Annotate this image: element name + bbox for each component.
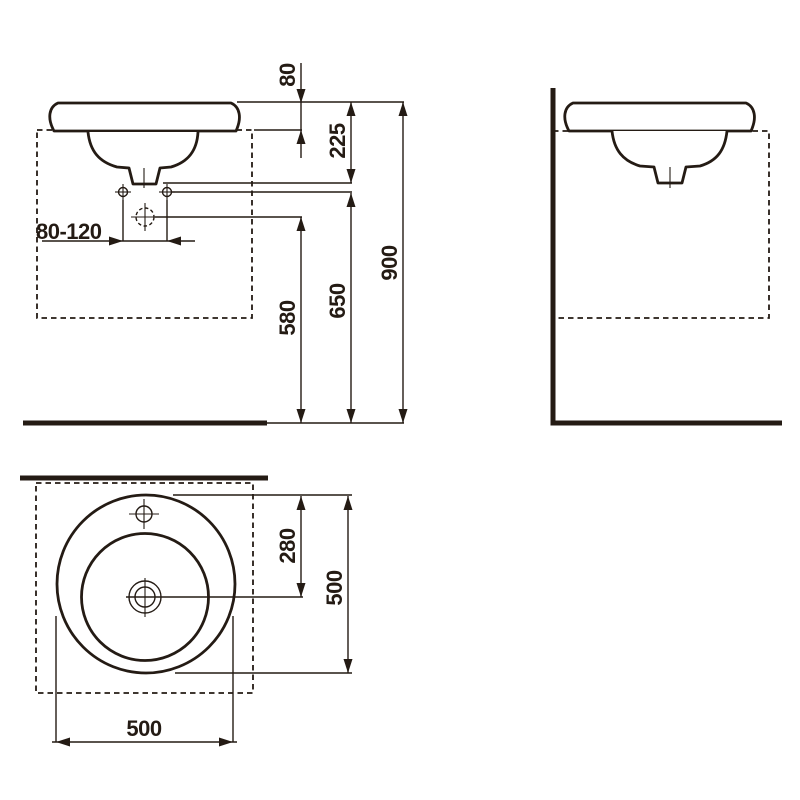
- dim-label: 225: [325, 123, 350, 158]
- dim-tap-hole-spacing: 80-120: [36, 219, 195, 246]
- arrow-right-icon: [219, 738, 233, 747]
- dim-label: 900: [377, 245, 402, 280]
- dim-label: 580: [275, 300, 300, 335]
- arrow-up-icon: [297, 496, 306, 510]
- basin-bowl: [88, 132, 198, 184]
- arrow-down-icon: [297, 89, 306, 103]
- plan-view: 280 500 500: [20, 478, 353, 747]
- arrow-up-icon: [297, 130, 306, 144]
- dim-fixing-height: 650: [325, 193, 356, 423]
- fixing-hole-marker-left: [115, 184, 131, 200]
- front-elevation-view: 80 225 650 580 900: [23, 63, 408, 423]
- arrow-up-icon: [347, 102, 356, 116]
- arrow-down-icon: [297, 583, 306, 597]
- washbasin-dimension-drawing: 80 225 650 580 900: [0, 0, 800, 800]
- arrow-down-icon: [344, 659, 353, 673]
- dim-label: 650: [325, 283, 350, 318]
- arrow-right-icon: [109, 237, 123, 246]
- dim-rim-height: 900: [377, 102, 408, 423]
- arrow-left-icon: [167, 237, 181, 246]
- dim-label: 500: [126, 716, 161, 741]
- side-elevation-view: [551, 88, 783, 426]
- dim-rim-above-counter: 80: [275, 63, 306, 158]
- arrow-up-icon: [399, 102, 408, 116]
- dim-label: 280: [275, 528, 300, 563]
- arrow-down-icon: [399, 409, 408, 423]
- arrow-left-icon: [56, 738, 70, 747]
- basin-rim: [50, 103, 240, 131]
- arrow-down-icon: [347, 169, 356, 183]
- technical-drawing-canvas: 80 225 650 580 900: [0, 0, 800, 800]
- drain-center-marker: [131, 203, 159, 231]
- arrow-down-icon: [297, 409, 306, 423]
- dim-rim-to-outlet: 225: [325, 102, 356, 183]
- dim-label: 500: [322, 570, 347, 605]
- dim-front-edge-to-center: 280: [275, 496, 306, 597]
- arrow-down-icon: [347, 409, 356, 423]
- dim-label: 80: [275, 63, 300, 87]
- dim-basin-depth: 500: [322, 496, 353, 673]
- dim-outlet-height: 580: [275, 217, 306, 423]
- arrow-up-icon: [297, 217, 306, 231]
- arrow-up-icon: [347, 193, 356, 207]
- dim-label: 80-120: [36, 219, 102, 244]
- dim-basin-width: 500: [52, 716, 237, 747]
- basin-rim: [565, 103, 755, 131]
- arrow-up-icon: [344, 496, 353, 510]
